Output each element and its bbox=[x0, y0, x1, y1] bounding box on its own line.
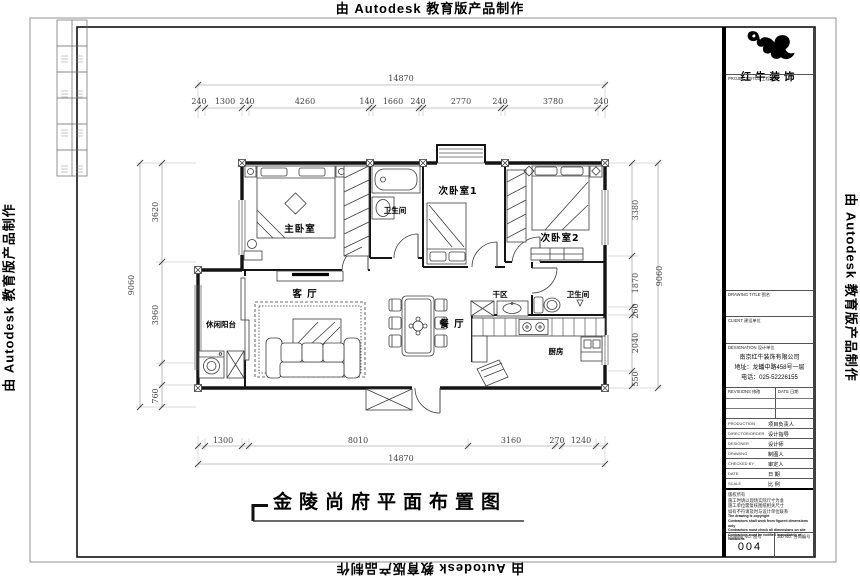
svg-text:550: 550 bbox=[631, 371, 640, 386]
svg-text:2040: 2040 bbox=[631, 333, 640, 353]
revisions-label: REVISIONS 修改 bbox=[728, 389, 760, 395]
svg-text:140: 140 bbox=[359, 97, 374, 106]
dimensions-left: 9060 3620 3960 760 bbox=[127, 160, 196, 410]
bedroom1-bed bbox=[427, 203, 466, 264]
room-label-bath1: 卫生间 bbox=[384, 205, 407, 215]
bedroom2-wardrobe bbox=[507, 170, 526, 242]
job-no-label: Job NO. 合同编号 bbox=[777, 534, 810, 540]
tv-cabinet bbox=[277, 271, 343, 281]
svg-text:1660: 1660 bbox=[383, 97, 403, 106]
dimensions-top: 14870 240 1300 240 4260 140 1660 240 277… bbox=[191, 74, 608, 118]
company-phone: 电话：025-52226155 bbox=[726, 373, 813, 383]
company-name: 南京红牛装饰有限公司 bbox=[726, 353, 813, 363]
room-label-kitchen: 厨房 bbox=[549, 346, 564, 356]
svg-text:1300: 1300 bbox=[215, 97, 235, 106]
room-label-living: 客 厅 bbox=[291, 288, 317, 300]
coffee-table bbox=[293, 319, 341, 346]
svg-text:240: 240 bbox=[593, 97, 608, 106]
dim-top-total: 14870 bbox=[388, 74, 413, 83]
drawing-title: 金陵尚府平面布置图 bbox=[240, 487, 540, 514]
svg-text:3160: 3160 bbox=[501, 436, 521, 445]
svg-text:1240: 1240 bbox=[571, 436, 591, 445]
drawing-number-row: Drawing NO. 图号 004 Job NO. 合同编号 bbox=[726, 532, 813, 557]
title-block: 红牛装饰 PROJECT/TITLE 工程名称 DRAWING TITLE 图名… bbox=[722, 27, 814, 557]
designation-label: DESIGNATION 设计单位 bbox=[728, 345, 774, 351]
fold-strip bbox=[57, 20, 87, 176]
svg-text:3960: 3960 bbox=[151, 305, 160, 325]
svg-text:4260: 4260 bbox=[295, 97, 315, 106]
svg-text:760: 760 bbox=[151, 388, 160, 403]
dimensions-right: 3380 1870 260 2040 550 9060 bbox=[608, 160, 664, 391]
floor-plan: 主卧室 卫生间 次卧室1 次卧室2 休闲阳台 客 厅 餐 厅 干区 卫生间 厨房… bbox=[127, 74, 664, 468]
designation-row: DESIGNATION 设计单位 南京红牛装饰有限公司 地址：龙蟠中路458号一… bbox=[726, 343, 813, 387]
master-wardrobe bbox=[344, 166, 369, 256]
date-col-label: DATE 日期 bbox=[778, 389, 798, 395]
drawing-title-row: DRAWING TITLE 图名 bbox=[726, 290, 813, 316]
svg-text:240: 240 bbox=[191, 97, 206, 106]
svg-text:2770: 2770 bbox=[451, 97, 471, 106]
svg-text:3620: 3620 bbox=[151, 202, 160, 222]
room-label-bath2: 卫生间 bbox=[567, 289, 590, 299]
rednbull-logo-icon bbox=[742, 28, 798, 70]
room-label-master: 主卧室 bbox=[284, 223, 316, 235]
kitchen-appliance bbox=[477, 360, 508, 386]
sheet-canvas: { "edge_text": "由 Autodesk 教育版产品制作", "sh… bbox=[0, 0, 860, 580]
svg-text:3380: 3380 bbox=[631, 200, 640, 220]
dining-set bbox=[389, 296, 447, 356]
svg-text:260: 260 bbox=[631, 303, 640, 318]
drawing-no-value: 004 bbox=[726, 541, 774, 553]
notes-block: 版权所有 施工时请以现场实际尺寸为准 施工单位需复核图纸相关尺寸 如有不符请及时… bbox=[726, 488, 813, 532]
sofa bbox=[266, 338, 360, 378]
dry-area-cabinets bbox=[471, 301, 528, 316]
svg-text:3780: 3780 bbox=[543, 97, 563, 106]
revisions-table: REVISIONS 修改 DATE 日期 bbox=[726, 387, 813, 418]
svg-text:240: 240 bbox=[239, 97, 254, 106]
svg-text:1870: 1870 bbox=[631, 273, 640, 293]
drawing-title-label: DRAWING TITLE 图名 bbox=[728, 292, 770, 298]
client-row: CLIENT 建设单位 bbox=[726, 316, 813, 343]
sheet-borders bbox=[30, 18, 836, 562]
exterior-platform bbox=[366, 389, 412, 410]
room-label-dining: 餐 厅 bbox=[438, 318, 464, 330]
company-address: 地址：龙蟠中路458号一层 bbox=[726, 363, 813, 373]
room-label-dry-area: 干区 bbox=[493, 290, 508, 299]
svg-text:8010: 8010 bbox=[348, 436, 368, 445]
dim-bottom-total: 14870 bbox=[388, 454, 413, 463]
fridge bbox=[581, 337, 602, 361]
client-label: CLIENT 建设单位 bbox=[728, 318, 761, 324]
dim-left-total: 9060 bbox=[127, 275, 136, 295]
room-label-bedroom2: 次卧室2 bbox=[540, 232, 579, 244]
project-title-row: PROJECT/TITLE 工程名称 bbox=[726, 74, 813, 88]
bedroom2-bed bbox=[524, 166, 602, 230]
toilet bbox=[534, 297, 583, 313]
room-label-balcony: 休闲阳台 bbox=[205, 319, 236, 329]
svg-text:1300: 1300 bbox=[213, 436, 233, 445]
svg-text:240: 240 bbox=[492, 97, 507, 106]
drawing-no-label: Drawing NO. 图号 bbox=[728, 534, 762, 540]
dim-right-total: 9060 bbox=[655, 266, 664, 286]
bedroom2-window-seat bbox=[531, 248, 583, 260]
project-title-label: PROJECT/TITLE 工程名称 bbox=[728, 76, 778, 82]
svg-text:240: 240 bbox=[410, 97, 425, 106]
master-stool bbox=[244, 240, 262, 261]
dimensions-bottom: 1300 8010 3160 270 1240 14870 bbox=[195, 436, 608, 468]
room-label-bedroom1: 次卧室1 bbox=[438, 185, 477, 197]
svg-text:270: 270 bbox=[549, 436, 564, 445]
washing-machine bbox=[199, 351, 244, 378]
bathtub bbox=[372, 166, 420, 193]
